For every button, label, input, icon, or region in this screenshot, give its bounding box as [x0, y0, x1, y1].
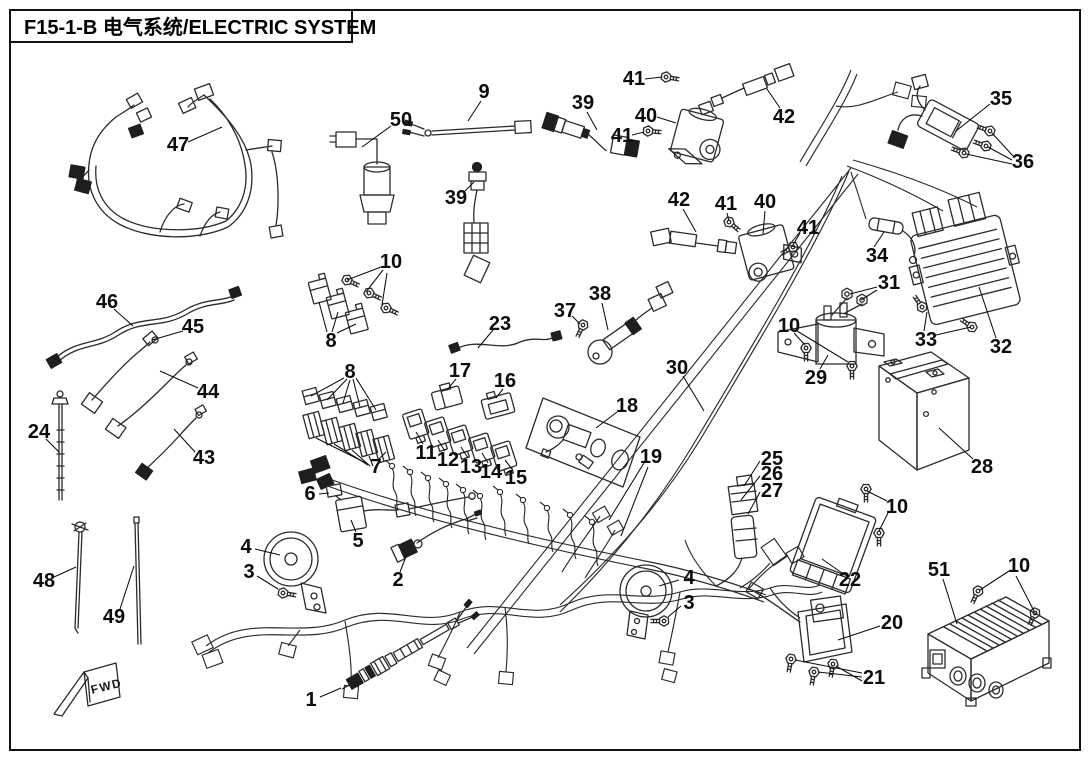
- part-16-connector: [480, 388, 515, 420]
- leader-line-41: [645, 77, 662, 79]
- callout-34: 34: [866, 245, 889, 267]
- leader-line-48: [54, 567, 76, 577]
- callout-45: 45: [182, 316, 204, 338]
- part-28-battery: [879, 352, 969, 470]
- leader-line-3: [668, 606, 681, 617]
- leader-line-49: [120, 566, 134, 609]
- callout-43: 43: [193, 447, 215, 469]
- callout-layer: 4750939414041423536391082317163738308711…: [28, 68, 1034, 711]
- leader-line-30: [683, 376, 704, 411]
- leader-line-39: [587, 112, 597, 130]
- part-5-flasher: [335, 493, 475, 532]
- leader-line-10: [347, 267, 381, 280]
- part-41-bolt: [661, 71, 680, 84]
- callout-39: 39: [445, 187, 467, 209]
- part-17-connector: [430, 381, 463, 410]
- leader-line-8: [319, 302, 327, 332]
- callout-42: 42: [773, 106, 795, 128]
- callout-49: 49: [103, 606, 125, 628]
- callout-38: 38: [589, 283, 611, 305]
- part-10-bolt: [380, 301, 400, 318]
- callout-10: 10: [778, 315, 800, 337]
- callout-23: 23: [489, 313, 511, 335]
- leader-line-36: [988, 147, 1012, 160]
- leader-line-51: [943, 579, 957, 624]
- leader-line-38: [602, 303, 608, 330]
- callout-10: 10: [886, 496, 908, 518]
- part-24-rod-antenna: [52, 391, 68, 500]
- leader-line-3: [257, 576, 278, 589]
- leader-line-33: [936, 327, 971, 335]
- part-48-rod-antenna: [72, 522, 88, 633]
- callout-8: 8: [325, 330, 336, 352]
- callout-13: 13: [460, 456, 482, 478]
- leader-line-42: [683, 209, 696, 232]
- part-50-power-socket: [330, 132, 394, 224]
- callout-50: 50: [390, 109, 412, 131]
- page-title: F15-1-B 电气系统/ELECTRIC SYSTEM: [24, 15, 376, 39]
- part-36-screw: [976, 122, 996, 138]
- leader-line-21: [818, 672, 862, 677]
- part-41-bolt: [779, 240, 799, 258]
- leader-line-40: [657, 117, 676, 123]
- leader-line-10: [382, 273, 387, 305]
- callout-27: 27: [761, 480, 783, 502]
- leader-line-32: [979, 287, 996, 338]
- callout-36: 36: [1012, 151, 1034, 173]
- callout-1: 1: [305, 689, 316, 711]
- callout-15: 15: [505, 467, 527, 489]
- part-10-bolt: [861, 485, 871, 503]
- manual-page: F15-1-B 电气系统/ELECTRIC SYSTEM: [0, 0, 1090, 760]
- callout-41: 41: [611, 125, 633, 147]
- leader-line-45: [152, 331, 183, 340]
- callout-35: 35: [990, 88, 1012, 110]
- leader-line-10: [980, 571, 1009, 590]
- part-3-bolt: [278, 587, 297, 600]
- leader-line-36: [992, 133, 1013, 156]
- part-21-bolt: [807, 667, 820, 686]
- part-9-jumper-wire: [403, 120, 532, 136]
- callout-18: 18: [616, 395, 638, 417]
- callout-9: 9: [478, 81, 489, 103]
- callout-10: 10: [1008, 555, 1030, 577]
- leader-line-47: [188, 127, 222, 142]
- callout-2: 2: [392, 569, 403, 591]
- callout-12: 12: [437, 449, 459, 471]
- leader-line-1: [320, 688, 341, 697]
- callout-51: 51: [928, 559, 950, 581]
- part-11-switch: [402, 409, 431, 446]
- leader-line-43: [174, 429, 195, 452]
- callout-32: 32: [990, 336, 1012, 358]
- callout-17: 17: [449, 360, 471, 382]
- electric-system-diagram: F15-1-B 电气系统/ELECTRIC SYSTEM: [0, 0, 1090, 760]
- callout-4: 4: [240, 536, 252, 558]
- leader-line-21: [836, 666, 862, 681]
- part-41-bolt: [643, 125, 661, 137]
- part-46-cable: [46, 287, 241, 369]
- callout-41: 41: [715, 193, 737, 215]
- leader-line-8: [343, 380, 350, 403]
- callout-5: 5: [352, 530, 363, 552]
- callout-11: 11: [415, 442, 436, 464]
- callout-41: 41: [623, 68, 645, 90]
- leader-line-40: [763, 211, 765, 234]
- callout-8: 8: [344, 361, 355, 383]
- leader-line-4: [659, 580, 679, 586]
- callout-20: 20: [881, 612, 903, 634]
- part-49-rod: [134, 517, 141, 644]
- part-44-cable: [105, 352, 197, 438]
- part-21-bolt: [784, 654, 797, 673]
- callout-19: 19: [640, 446, 662, 468]
- part-33-screw: [910, 293, 929, 313]
- callout-40: 40: [635, 105, 657, 127]
- leader-line-44: [160, 371, 198, 388]
- callout-4: 4: [683, 567, 695, 589]
- callout-21: 21: [863, 667, 885, 689]
- callout-16: 16: [494, 370, 516, 392]
- part-20-bracket-component: [746, 582, 852, 662]
- part-35-sensor: [888, 74, 980, 151]
- part-51-ecu: [922, 597, 1051, 706]
- part-10-bolt: [874, 529, 884, 547]
- leader-line-8: [337, 324, 356, 333]
- callout-47: 47: [167, 134, 189, 156]
- callout-31: 31: [878, 272, 900, 294]
- callout-48: 48: [33, 570, 55, 592]
- part-6-connector: [326, 484, 342, 500]
- callout-44: 44: [197, 381, 220, 403]
- part-22-control-module: [789, 491, 879, 596]
- callout-3: 3: [683, 592, 694, 614]
- callout-10: 10: [380, 251, 402, 273]
- leader-line-36: [966, 154, 1012, 164]
- callout-41: 41: [797, 217, 819, 239]
- callout-6: 6: [304, 483, 315, 505]
- callout-28: 28: [971, 456, 993, 478]
- part-8-relays-upper-trio: [307, 273, 368, 334]
- part-36-screw: [950, 144, 970, 160]
- part-3-bolt: [651, 616, 669, 626]
- leader-line-7: [334, 444, 368, 465]
- part-45-cable: [81, 331, 158, 413]
- callout-30: 30: [666, 357, 688, 379]
- leader-line-9: [468, 101, 481, 121]
- callout-40: 40: [754, 191, 776, 213]
- callout-7: 7: [370, 456, 381, 478]
- callout-24: 24: [28, 421, 51, 443]
- part-10-screw: [968, 585, 985, 605]
- callout-46: 46: [96, 291, 118, 313]
- callout-39: 39: [572, 92, 594, 114]
- leader-line-20: [838, 626, 880, 640]
- callout-29: 29: [805, 367, 827, 389]
- leader-line-10: [867, 491, 887, 501]
- leader-line-41: [632, 132, 644, 135]
- part-42-spark-plug-cable-mid: [651, 228, 737, 253]
- fwd-label: FWD: [89, 676, 123, 697]
- leader-line-10: [366, 270, 383, 292]
- lower-harness: [192, 456, 822, 699]
- leader-line-4: [255, 549, 280, 555]
- part-39-oxygen-sensor-lower: [464, 163, 490, 283]
- callout-42: 42: [668, 189, 690, 211]
- part-10-bolt: [363, 286, 383, 303]
- callout-3: 3: [243, 561, 254, 583]
- part-4-horn-left: [264, 532, 326, 613]
- leader-line-19: [621, 467, 648, 536]
- callout-22: 22: [839, 569, 861, 591]
- part-40-ignition-coil-upper: [666, 103, 729, 171]
- part-25-26-27-connector-stack: [716, 475, 758, 586]
- leader-line-8: [332, 312, 338, 332]
- part-2-sensor: [391, 510, 482, 562]
- part-10-bolt: [847, 362, 857, 380]
- callout-33: 33: [915, 329, 937, 351]
- part-36-screw: [972, 137, 992, 153]
- callout-37: 37: [554, 300, 576, 322]
- callout-14: 14: [480, 461, 503, 483]
- part-47-front-harness: [69, 84, 283, 238]
- leader-line-10: [1016, 576, 1034, 611]
- part-41-bolt: [722, 215, 742, 234]
